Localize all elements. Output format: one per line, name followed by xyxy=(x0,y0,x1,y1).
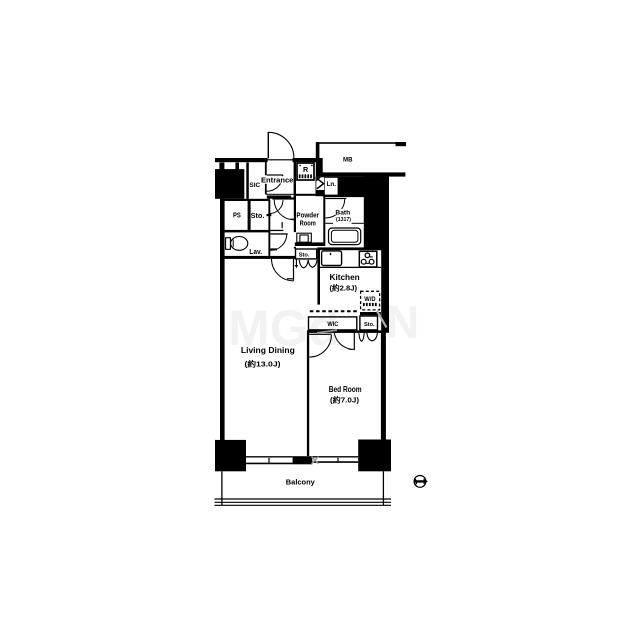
svg-text:PS: PS xyxy=(233,213,241,220)
svg-text:Balcony: Balcony xyxy=(286,477,316,486)
svg-text:WIC: WIC xyxy=(327,321,338,328)
svg-text:Ln.: Ln. xyxy=(327,181,337,188)
svg-text:R: R xyxy=(303,167,308,174)
svg-text:Sto.: Sto. xyxy=(251,213,265,220)
svg-text:SIC: SIC xyxy=(249,182,260,189)
svg-text:Bath: Bath xyxy=(335,209,350,216)
svg-text:Kitchen: Kitchen xyxy=(330,273,360,282)
svg-text:(1317): (1317) xyxy=(336,217,351,223)
svg-text:(約7.0J): (約7.0J) xyxy=(330,396,360,405)
svg-text:MB: MB xyxy=(343,157,353,164)
svg-text:Entrance: Entrance xyxy=(261,176,293,185)
svg-text:W/D: W/D xyxy=(364,297,376,303)
svg-text:N: N xyxy=(386,296,419,348)
svg-text:Living Dining: Living Dining xyxy=(241,346,295,355)
svg-text:Lav.: Lav. xyxy=(249,249,262,256)
svg-text:(約2.8J): (約2.8J) xyxy=(330,283,358,292)
svg-text:Room: Room xyxy=(300,221,316,228)
svg-text:Powder: Powder xyxy=(296,212,319,219)
svg-text:Sto.: Sto. xyxy=(364,322,375,328)
svg-text:Sto.: Sto. xyxy=(299,252,310,258)
svg-text:(約13.0J): (約13.0J) xyxy=(245,360,282,369)
svg-text:Bed Room: Bed Room xyxy=(329,385,362,394)
